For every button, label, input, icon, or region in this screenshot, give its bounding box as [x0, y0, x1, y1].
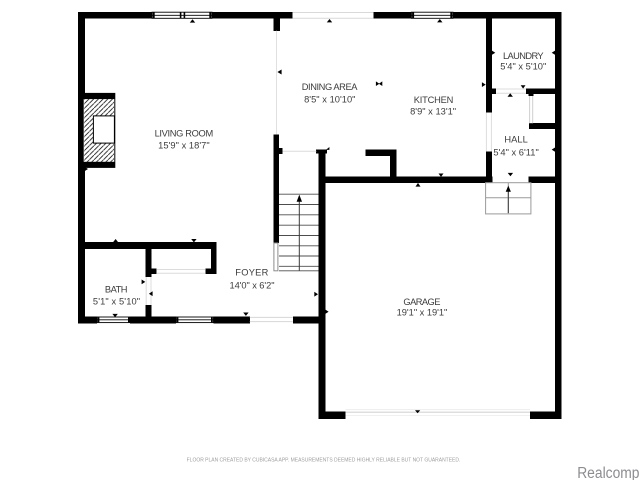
- svg-text:5'4" x 5'10": 5'4" x 5'10": [500, 62, 546, 72]
- svg-text:LIVING ROOM: LIVING ROOM: [155, 128, 214, 138]
- svg-text:BATH: BATH: [105, 285, 128, 295]
- svg-text:LAUNDRY: LAUNDRY: [503, 51, 544, 61]
- svg-text:FOYER: FOYER: [235, 268, 268, 278]
- svg-text:GARAGE: GARAGE: [403, 297, 440, 307]
- svg-text:HALL: HALL: [504, 135, 527, 145]
- svg-text:19'1" x 19'1": 19'1" x 19'1": [397, 307, 448, 317]
- svg-text:14'0" x 6'2": 14'0" x 6'2": [230, 281, 275, 291]
- svg-text:8'5" x 10'10": 8'5" x 10'10": [304, 95, 355, 105]
- svg-text:KITCHEN: KITCHEN: [414, 95, 454, 105]
- svg-text:5'1" x 5'10": 5'1" x 5'10": [93, 297, 140, 307]
- svg-text:Realcomp: Realcomp: [577, 465, 639, 480]
- svg-text:15'9" x 18'7": 15'9" x 18'7": [158, 141, 210, 151]
- svg-text:FLOOR PLAN CREATED BY CUBICASA: FLOOR PLAN CREATED BY CUBICASA APP. MEAS…: [187, 458, 461, 464]
- svg-text:8'9" x 13'1": 8'9" x 13'1": [410, 107, 456, 117]
- svg-text:5'4" x 6'11": 5'4" x 6'11": [493, 147, 538, 157]
- svg-text:DINING AREA: DINING AREA: [302, 82, 358, 92]
